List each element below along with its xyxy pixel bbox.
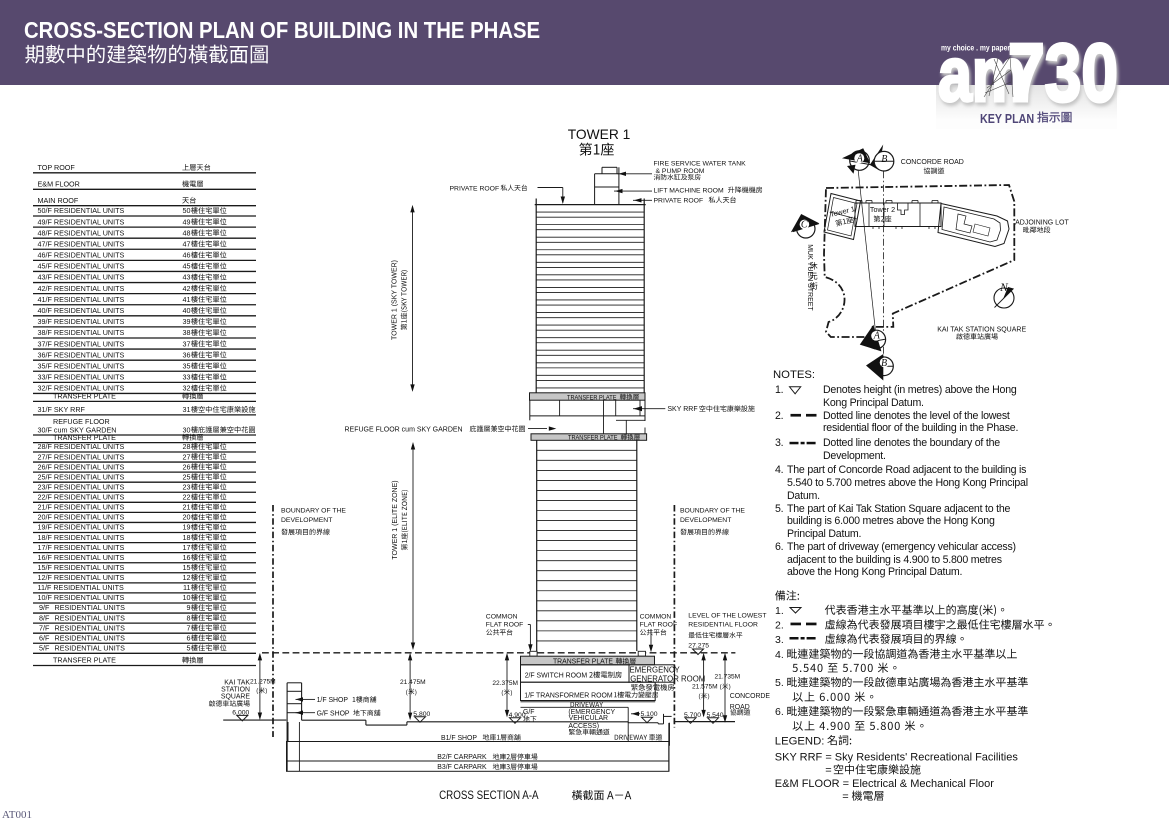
- svg-text:B1/F SHOP: B1/F SHOP: [441, 735, 477, 742]
- svg-text:11: 11: [183, 583, 190, 592]
- svg-text:16/F RESIDENTIAL UNITS: 16/F RESIDENTIAL UNITS: [38, 553, 125, 562]
- svg-text:28: 28: [183, 442, 191, 451]
- svg-text:18: 18: [183, 533, 191, 542]
- svg-text:25: 25: [183, 472, 191, 481]
- svg-text:B3/F CARPARK: B3/F CARPARK: [437, 764, 487, 771]
- svg-text:21.475M: 21.475M: [400, 679, 426, 686]
- svg-text:BOUNDARY OF THE: BOUNDARY OF THE: [680, 508, 745, 515]
- svg-text:RESIDENTIAL FLOOR: RESIDENTIAL FLOOR: [688, 622, 758, 629]
- svg-text:(: (: [720, 684, 723, 691]
- svg-text:26/F RESIDENTIAL UNITS: 26/F RESIDENTIAL UNITS: [38, 462, 125, 471]
- svg-text:43/F RESIDENTIAL UNITS: 43/F RESIDENTIAL UNITS: [38, 273, 125, 282]
- svg-text:TOWER 1 (SKY TOWER): TOWER 1 (SKY TOWER): [392, 260, 399, 340]
- svg-text:(: (: [256, 688, 259, 695]
- svg-text:39/F RESIDENTIAL UNITS: 39/F RESIDENTIAL UNITS: [38, 317, 125, 326]
- svg-text:RESIDENTIAL UNITS: RESIDENTIAL UNITS: [55, 603, 126, 612]
- svg-text:21/F RESIDENTIAL UNITS: 21/F RESIDENTIAL UNITS: [38, 503, 125, 512]
- svg-text:9: 9: [187, 603, 191, 612]
- svg-text:RESIDENTIAL UNITS: RESIDENTIAL UNITS: [55, 623, 126, 632]
- svg-text:DEVELOPMENT: DEVELOPMENT: [281, 517, 332, 524]
- svg-text:43: 43: [183, 273, 191, 282]
- svg-text:10/F RESIDENTIAL UNITS: 10/F RESIDENTIAL UNITS: [38, 593, 125, 602]
- svg-text:2.: 2.: [775, 620, 784, 632]
- svg-text:33/F RESIDENTIAL UNITS: 33/F RESIDENTIAL UNITS: [38, 373, 125, 382]
- svg-text:TRANSFER PLATE: TRANSFER PLATE: [53, 656, 116, 665]
- svg-text:TOWER 1: TOWER 1: [568, 127, 631, 142]
- svg-text:(: (: [501, 689, 504, 696]
- svg-text:(: (: [699, 693, 702, 700]
- svg-text:35/F RESIDENTIAL UNITS: 35/F RESIDENTIAL UNITS: [38, 362, 125, 371]
- svg-text:): ): [415, 689, 417, 696]
- svg-text:15: 15: [183, 563, 191, 572]
- svg-text:SKY RRF = Sky Residents' Recre: SKY RRF = Sky Residents' Recreational Fa…: [775, 752, 1019, 764]
- svg-text:47: 47: [183, 240, 191, 249]
- svg-text:6/F: 6/F: [39, 633, 50, 642]
- svg-text:39: 39: [183, 317, 191, 326]
- svg-text:6: 6: [187, 633, 191, 642]
- svg-text:PRIVATE ROOF: PRIVATE ROOF: [450, 185, 500, 192]
- svg-text:28/F RESIDENTIAL UNITS: 28/F RESIDENTIAL UNITS: [38, 442, 125, 451]
- svg-text:TRANSFER PLATE: TRANSFER PLATE: [53, 433, 116, 442]
- svg-text:BOUNDARY OF THE: BOUNDARY OF THE: [281, 508, 346, 515]
- svg-text:B: B: [881, 358, 887, 369]
- svg-text:20/F RESIDENTIAL UNITS: 20/F RESIDENTIAL UNITS: [38, 513, 125, 522]
- svg-text:5/F: 5/F: [39, 644, 50, 653]
- svg-text:TOP ROOF: TOP ROOF: [38, 163, 76, 172]
- svg-text:19: 19: [183, 523, 191, 532]
- svg-text:26: 26: [183, 462, 191, 471]
- svg-text:21.735M: 21.735M: [715, 673, 741, 680]
- svg-text:1/F TRANSFORMER ROOM: 1/F TRANSFORMER ROOM: [524, 692, 613, 699]
- svg-text:): ): [729, 684, 731, 691]
- svg-text:21.575M: 21.575M: [692, 684, 718, 691]
- svg-text:23/F RESIDENTIAL UNITS: 23/F RESIDENTIAL UNITS: [38, 483, 125, 492]
- svg-text:50/F RESIDENTIAL UNITS: 50/F RESIDENTIAL UNITS: [38, 206, 125, 215]
- svg-text:47/F RESIDENTIAL UNITS: 47/F RESIDENTIAL UNITS: [38, 240, 125, 249]
- svg-text:KAI TAK STATION SQUARE: KAI TAK STATION SQUARE: [937, 326, 1026, 333]
- svg-text:36/F RESIDENTIAL UNITS: 36/F RESIDENTIAL UNITS: [38, 350, 125, 359]
- svg-text:4.: 4.: [775, 649, 784, 661]
- svg-text:TOWER 1 (ELITE ZONE): TOWER 1 (ELITE ZONE): [392, 480, 399, 559]
- svg-text:17/F RESIDENTIAL UNITS: 17/F RESIDENTIAL UNITS: [38, 543, 125, 552]
- svg-text:TRANSFER PLATE: TRANSFER PLATE: [53, 392, 116, 401]
- svg-text:1/F SHOP: 1/F SHOP: [317, 697, 349, 704]
- svg-text:48: 48: [183, 228, 191, 237]
- svg-text:CROSS SECTION A-A: CROSS SECTION A-A: [439, 788, 539, 802]
- svg-text:25/F RESIDENTIAL UNITS: 25/F RESIDENTIAL UNITS: [38, 472, 125, 481]
- svg-text:17: 17: [183, 543, 191, 552]
- svg-text:37/F RESIDENTIAL UNITS: 37/F RESIDENTIAL UNITS: [38, 339, 125, 348]
- svg-text:SKY RRF: SKY RRF: [667, 406, 697, 413]
- svg-text:48/F RESIDENTIAL UNITS: 48/F RESIDENTIAL UNITS: [38, 228, 125, 237]
- svg-text:11/F RESIDENTIAL UNITS: 11/F RESIDENTIAL UNITS: [38, 583, 124, 592]
- svg-text:Tower 2: Tower 2: [870, 205, 895, 214]
- svg-text:46/F RESIDENTIAL UNITS: 46/F RESIDENTIAL UNITS: [38, 251, 125, 260]
- svg-text:KAI TAK: KAI TAK: [224, 679, 250, 686]
- svg-text:): ): [265, 688, 267, 695]
- svg-text:19/F RESIDENTIAL UNITS: 19/F RESIDENTIAL UNITS: [38, 523, 125, 532]
- svg-text:REFUGE FLOOR cum SKY GARDEN: REFUGE FLOOR cum SKY GARDEN: [345, 426, 463, 433]
- svg-text:32: 32: [183, 384, 191, 393]
- svg-text:45: 45: [183, 262, 191, 271]
- svg-text:N: N: [999, 282, 1009, 294]
- svg-text:C: C: [801, 220, 808, 231]
- svg-text:ADJOINING LOT: ADJOINING LOT: [1015, 220, 1069, 227]
- svg-text:LEVEL OF THE LOWEST: LEVEL OF THE LOWEST: [688, 612, 766, 619]
- svg-text:40/F RESIDENTIAL UNITS: 40/F RESIDENTIAL UNITS: [38, 306, 125, 315]
- svg-text:COMMON: COMMON: [486, 613, 518, 620]
- svg-text:22.375M: 22.375M: [492, 680, 518, 687]
- svg-text:VEHICULAR: VEHICULAR: [569, 715, 608, 722]
- svg-text:LIFT MACHINE ROOM: LIFT MACHINE ROOM: [654, 187, 724, 194]
- svg-text:35: 35: [183, 362, 191, 371]
- svg-text:40: 40: [183, 306, 191, 315]
- svg-text:9/F: 9/F: [39, 603, 50, 612]
- svg-text:21.275M: 21.275M: [250, 679, 276, 686]
- svg-text:5: 5: [187, 644, 191, 653]
- svg-text:27/F RESIDENTIAL UNITS: 27/F RESIDENTIAL UNITS: [38, 452, 125, 461]
- svg-text:Tower 1: Tower 1: [829, 204, 856, 219]
- svg-text:33: 33: [183, 373, 191, 382]
- svg-text:18/F RESIDENTIAL UNITS: 18/F RESIDENTIAL UNITS: [38, 533, 125, 542]
- svg-text:27: 27: [183, 452, 191, 461]
- svg-text:49: 49: [183, 217, 191, 226]
- svg-text:A: A: [856, 154, 864, 165]
- svg-text:CONCORDE ROAD: CONCORDE ROAD: [901, 159, 964, 166]
- svg-text:16: 16: [183, 553, 191, 562]
- svg-text:): ): [510, 689, 512, 696]
- svg-text:LEGEND:: LEGEND:: [775, 735, 825, 747]
- svg-text:31/F SKY RRF: 31/F SKY RRF: [38, 405, 86, 414]
- svg-text:FLAT ROOF: FLAT ROOF: [640, 622, 678, 629]
- svg-text:5.: 5.: [775, 677, 784, 689]
- svg-text:=: =: [842, 791, 848, 803]
- svg-text:22: 22: [183, 493, 191, 502]
- svg-text:2/F SWITCH ROOM: 2/F SWITCH ROOM: [525, 673, 588, 680]
- svg-text:7: 7: [187, 623, 191, 632]
- svg-text:38: 38: [183, 328, 191, 337]
- svg-text:8/F: 8/F: [39, 613, 50, 622]
- svg-text:B: B: [881, 154, 887, 165]
- svg-text:G/F SHOP: G/F SHOP: [317, 710, 350, 717]
- svg-text:41: 41: [183, 295, 191, 304]
- svg-text:20: 20: [183, 513, 191, 522]
- svg-text:E&M FLOOR = Electrical & Mecha: E&M FLOOR = Electrical & Mechanical Floo…: [775, 778, 994, 790]
- svg-text:E&M FLOOR: E&M FLOOR: [38, 180, 80, 189]
- svg-text:8: 8: [187, 613, 191, 622]
- svg-text:COMMON: COMMON: [640, 613, 672, 620]
- svg-text:1.: 1.: [775, 605, 784, 617]
- svg-text:(: (: [406, 689, 409, 696]
- svg-text:): ): [708, 693, 710, 700]
- svg-text:B2/F CARPARK: B2/F CARPARK: [437, 754, 487, 761]
- svg-text:10: 10: [183, 593, 191, 602]
- svg-text:12: 12: [183, 573, 191, 582]
- svg-text:22/F RESIDENTIAL UNITS: 22/F RESIDENTIAL UNITS: [38, 493, 125, 502]
- svg-text:42: 42: [183, 284, 191, 293]
- svg-text:SQUARE: SQUARE: [221, 693, 251, 700]
- svg-text:31: 31: [183, 405, 191, 414]
- svg-text:=: =: [825, 765, 831, 777]
- svg-text:FIRE SERVICE WATER TANK: FIRE SERVICE WATER TANK: [654, 161, 747, 168]
- svg-text:& PUMP ROOM: & PUMP ROOM: [656, 168, 705, 175]
- svg-text:41/F RESIDENTIAL UNITS: 41/F RESIDENTIAL UNITS: [38, 295, 125, 304]
- svg-text:30: 30: [183, 425, 191, 434]
- svg-text:23: 23: [183, 483, 191, 492]
- svg-text:FLAT ROOF: FLAT ROOF: [486, 622, 524, 629]
- svg-text:RESIDENTIAL UNITS: RESIDENTIAL UNITS: [55, 633, 126, 642]
- svg-text:RESIDENTIAL UNITS: RESIDENTIAL UNITS: [55, 613, 126, 622]
- svg-text:45/F RESIDENTIAL UNITS: 45/F RESIDENTIAL UNITS: [38, 262, 125, 271]
- svg-text:38/F RESIDENTIAL UNITS: 38/F RESIDENTIAL UNITS: [38, 328, 125, 337]
- svg-text:42/F RESIDENTIAL UNITS: 42/F RESIDENTIAL UNITS: [38, 284, 125, 293]
- svg-text:PRIVATE ROOF: PRIVATE ROOF: [654, 197, 704, 204]
- svg-text:46: 46: [183, 251, 191, 260]
- svg-text:49/F RESIDENTIAL UNITS: 49/F RESIDENTIAL UNITS: [38, 217, 125, 226]
- svg-text:50: 50: [183, 206, 191, 215]
- svg-text:CONCORDE: CONCORDE: [730, 693, 771, 700]
- svg-text:21: 21: [183, 503, 191, 512]
- svg-text:12/F RESIDENTIAL UNITS: 12/F RESIDENTIAL UNITS: [38, 573, 125, 582]
- svg-text:36: 36: [183, 350, 191, 359]
- svg-text:RESIDENTIAL UNITS: RESIDENTIAL UNITS: [55, 644, 126, 653]
- svg-text:15/F RESIDENTIAL UNITS: 15/F RESIDENTIAL UNITS: [38, 563, 125, 572]
- svg-text:7/F: 7/F: [39, 623, 50, 632]
- svg-text:TRANSFER PLATE: TRANSFER PLATE: [567, 394, 617, 401]
- svg-text:6.: 6.: [775, 706, 784, 718]
- svg-text:37: 37: [183, 339, 191, 348]
- svg-text:EMERGENCY: EMERGENCY: [630, 665, 681, 674]
- svg-text:3.: 3.: [775, 634, 784, 646]
- svg-text:MAIN ROOF: MAIN ROOF: [38, 196, 79, 205]
- svg-text:TRANSFER PLATE: TRANSFER PLATE: [568, 435, 618, 442]
- svg-text:A: A: [873, 331, 881, 342]
- svg-text:DEVELOPMENT: DEVELOPMENT: [680, 517, 731, 524]
